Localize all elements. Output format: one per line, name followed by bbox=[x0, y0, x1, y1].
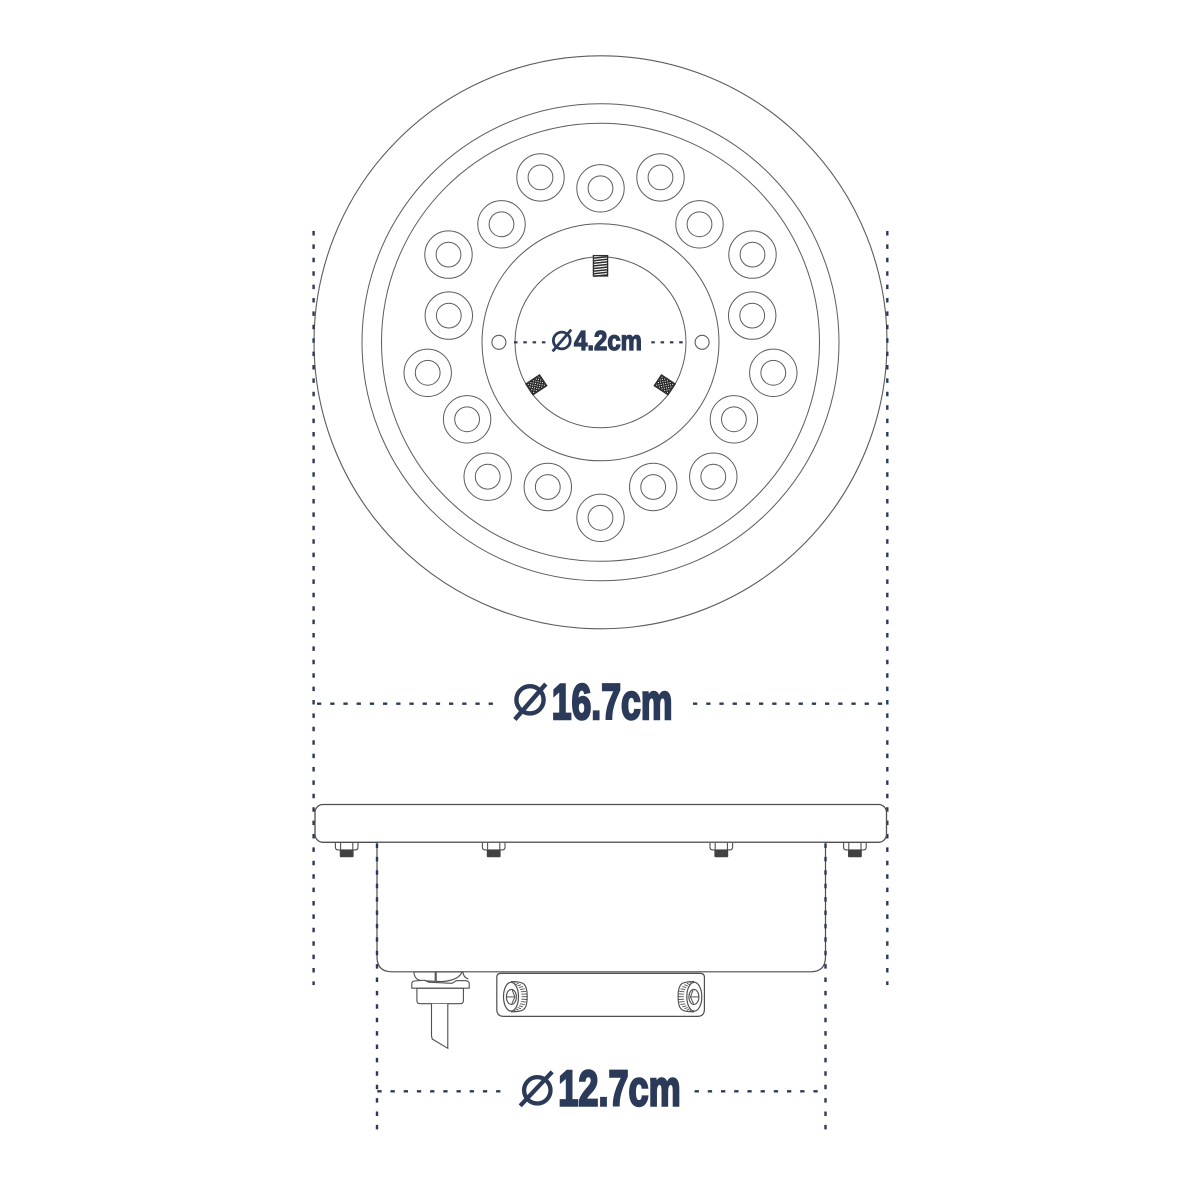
svg-text:16.7cm: 16.7cm bbox=[552, 673, 673, 730]
svg-text:4.2cm: 4.2cm bbox=[574, 325, 642, 356]
svg-text:12.7cm: 12.7cm bbox=[558, 1060, 680, 1117]
